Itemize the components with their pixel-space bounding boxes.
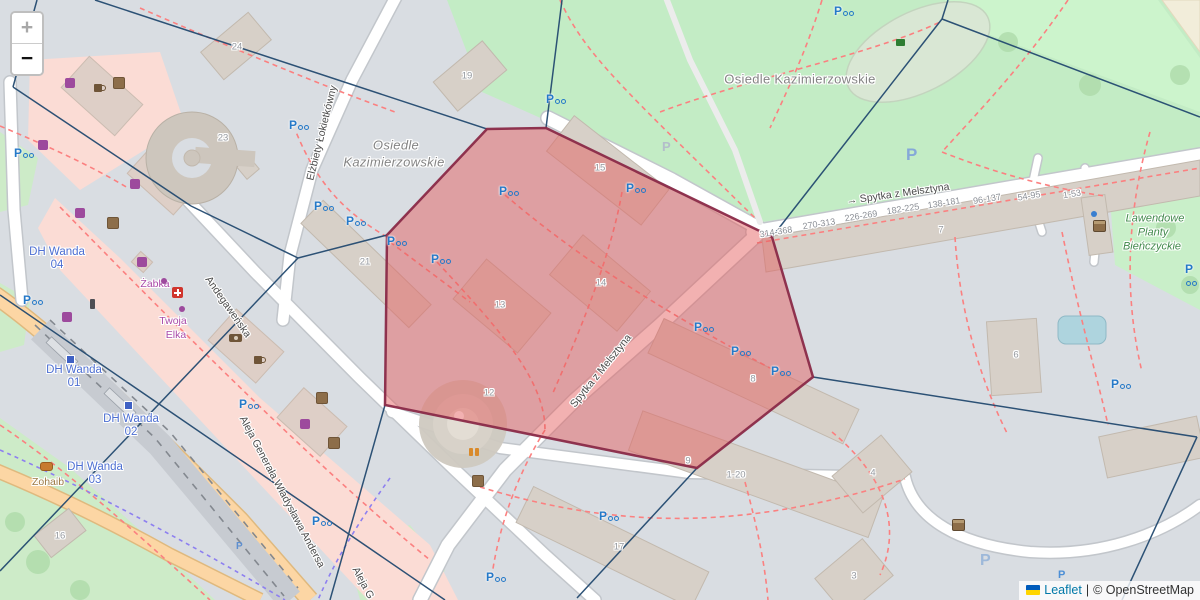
bicycle-parking-icon: P: [387, 235, 407, 248]
building-number: 1-20: [726, 471, 745, 482]
attribution-bar: Leaflet | © OpenStreetMap: [1019, 581, 1200, 600]
bicycle-parking-icon: P: [312, 515, 332, 528]
bicycle-parking-icon: P: [239, 398, 259, 411]
bicycle-parking-icon: P: [731, 345, 751, 358]
cafe-icon: [94, 84, 102, 92]
bicycle-parking-icon: P: [626, 182, 646, 195]
chest-icon: [316, 392, 328, 404]
bicycle-parking-icon: P: [23, 294, 43, 307]
bicycle-parking-icon: P: [694, 321, 714, 334]
poi-label-zohaib: Zohaib: [32, 476, 64, 488]
round-building: [146, 112, 255, 204]
building-number: 7: [938, 226, 943, 237]
leaflet-map[interactable]: Osiedle Kazimierzowskie Osiedle Kazimier…: [0, 0, 1200, 600]
tram-stop-icon: [66, 355, 75, 364]
camera-shop-icon: [229, 334, 242, 342]
tram-stop-label: DH Wanda04: [29, 246, 85, 272]
park-label-line1: Lawendowe: [1126, 213, 1185, 226]
bicycle-parking-icon: P: [314, 200, 334, 213]
building-number: 13: [495, 301, 506, 312]
tram-stop-label: DH Wanda02: [103, 413, 159, 439]
neighbourhood-label-left-line2: Kazimierzowskie: [343, 156, 444, 171]
bicycle-parking-icon: P: [546, 93, 566, 106]
bakery-icon: [130, 179, 140, 189]
furniture-shop-icon: [113, 77, 125, 89]
tram-stop-label: DH Wanda03: [67, 461, 123, 487]
park-label-line3: Bieńczyckie: [1123, 241, 1181, 254]
parking-area-icon: P: [906, 146, 917, 163]
fast-food-icon: [40, 462, 53, 471]
bicycle-parking-icon: P: [499, 185, 519, 198]
shop-label-twoja-line2: Elka: [166, 329, 186, 341]
parking-area-icon: P: [236, 542, 243, 552]
chest-icon: [328, 437, 340, 449]
playground-icon: [896, 39, 905, 46]
bicycle-parking-icon: P: [599, 510, 619, 523]
luggage-shop-icon: [62, 312, 72, 322]
neighbourhood-label-left-line1: Osiedle: [373, 139, 419, 154]
confectionery-icon: [75, 208, 85, 218]
bicycle-parking-icon: P: [346, 215, 366, 228]
statue-icon: [469, 448, 473, 456]
bicycle-parking-icon: P: [431, 253, 451, 266]
money-exchange-icon: [107, 217, 119, 229]
restaurant-icon: [472, 475, 484, 487]
parcel-locker-icon: [1093, 220, 1106, 232]
building-number: 14: [596, 279, 607, 290]
building-number: 6: [1013, 351, 1018, 362]
poi-dot-icon: [1091, 211, 1097, 217]
leaflet-link[interactable]: Leaflet: [1044, 583, 1082, 597]
clothes-shop-icon: [300, 419, 310, 429]
parking-area-icon: P: [662, 140, 671, 153]
building-number: 17: [614, 543, 625, 554]
attribution-separator: |: [1086, 583, 1089, 597]
bicycle-parking-icon: P: [486, 571, 506, 584]
traffic-signal-icon: [90, 299, 95, 309]
cafe-icon: [254, 356, 262, 364]
building-number: 8: [750, 375, 755, 386]
parking-area-icon: P: [1058, 570, 1065, 581]
shop-label-twoja-line1: Twoja: [159, 315, 186, 327]
park-label-line2: Planty: [1138, 227, 1169, 240]
building-number: 12: [484, 389, 495, 400]
zoom-in-button[interactable]: +: [12, 13, 42, 43]
bicycle-parking-icon: P: [1185, 263, 1200, 288]
building-number: 21: [360, 258, 371, 269]
oneway-arrow-icon: →: [846, 194, 858, 207]
tram-stop-label: DH Wanda01: [46, 364, 102, 390]
building-number: 23: [218, 134, 229, 145]
shop-icon: [65, 78, 75, 88]
ukraine-flag-icon: [1026, 585, 1040, 595]
bicycle-parking-icon: P: [1111, 378, 1131, 391]
building-number: 24: [232, 43, 243, 54]
osm-attribution: © OpenStreetMap: [1093, 583, 1194, 597]
shop-dot-icon: [179, 306, 185, 312]
building-number: 9: [685, 457, 690, 468]
building-number: 16: [55, 532, 66, 543]
zoom-control: + −: [10, 11, 44, 76]
parcel-locker-icon: [952, 519, 965, 531]
parking-area-icon: P: [980, 553, 991, 569]
tram-stop-icon: [124, 401, 133, 410]
shop-dot-icon: [161, 278, 167, 284]
zoom-out-button[interactable]: −: [12, 43, 42, 74]
shop-icon: [38, 140, 48, 150]
bicycle-parking-icon: P: [771, 365, 791, 378]
building-number: 4: [870, 469, 875, 480]
building-number: 3: [851, 572, 856, 583]
neighbourhood-label-top: Osiedle Kazimierzowskie: [724, 73, 875, 88]
bicycle-parking-icon: P: [834, 5, 854, 18]
building-number: 15: [595, 164, 606, 175]
bicycle-parking-icon: P: [14, 147, 34, 160]
building-number: 19: [462, 72, 473, 83]
basket-icon: [137, 257, 147, 267]
bicycle-parking-icon: P: [289, 119, 309, 132]
pharmacy-icon: [172, 287, 183, 298]
